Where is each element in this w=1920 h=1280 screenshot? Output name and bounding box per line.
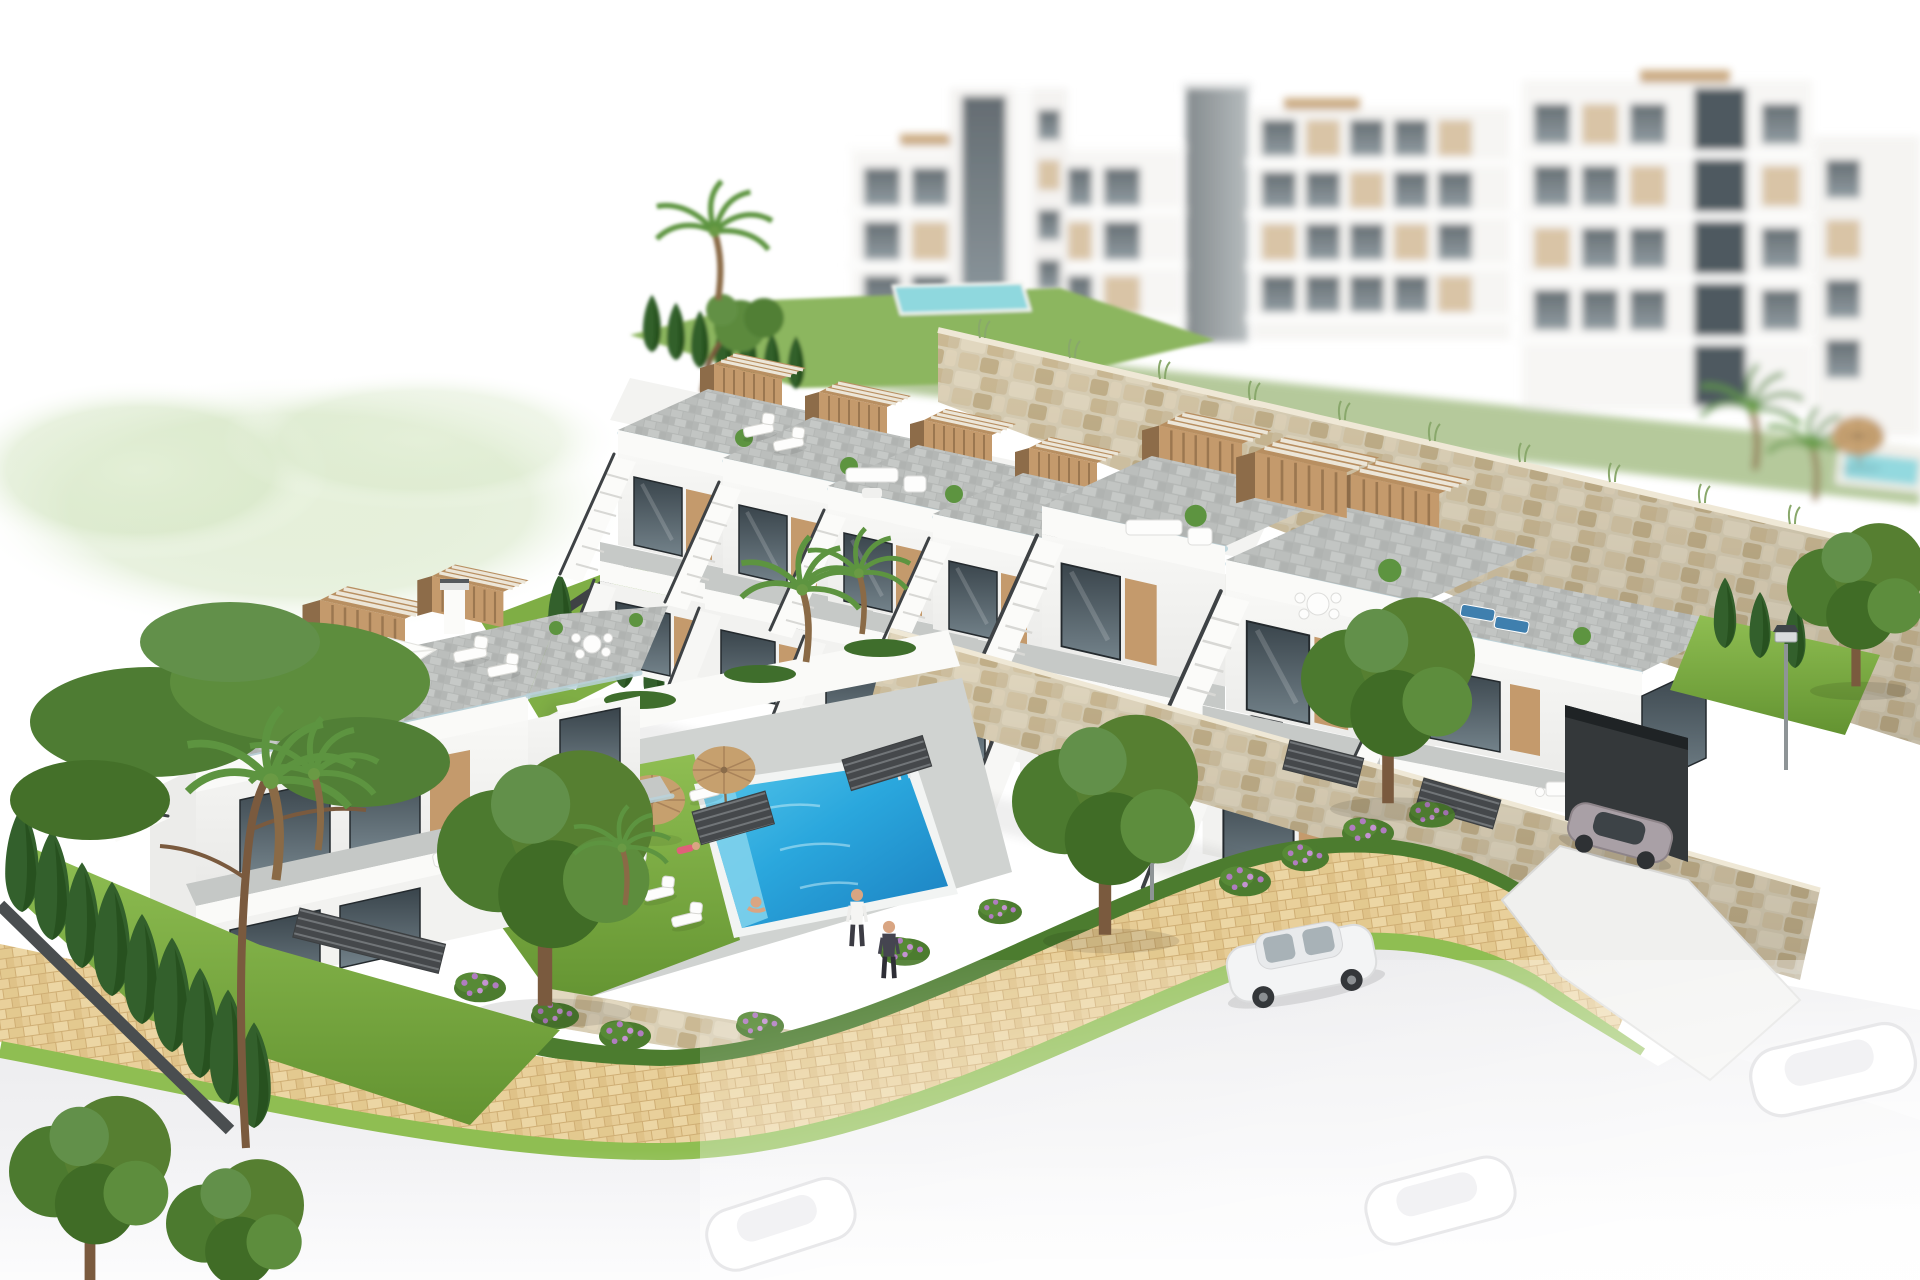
- roof-plant: [1573, 627, 1591, 645]
- architectural-render: [0, 0, 1920, 1280]
- lift-shaft: [1186, 88, 1248, 342]
- planter-hedge: [844, 639, 916, 657]
- upper-garden-pool: [893, 283, 1030, 314]
- render-canvas: [0, 0, 1920, 1280]
- background-roof-pergola: [1640, 70, 1730, 83]
- background-roof-pergola: [1284, 98, 1360, 110]
- dark-glazed-core: [1694, 88, 1746, 406]
- faded-hill-blob: [0, 370, 630, 635]
- planter-hedge: [724, 665, 796, 683]
- facade-wood-panel: [1510, 684, 1540, 756]
- chimney: [440, 579, 469, 634]
